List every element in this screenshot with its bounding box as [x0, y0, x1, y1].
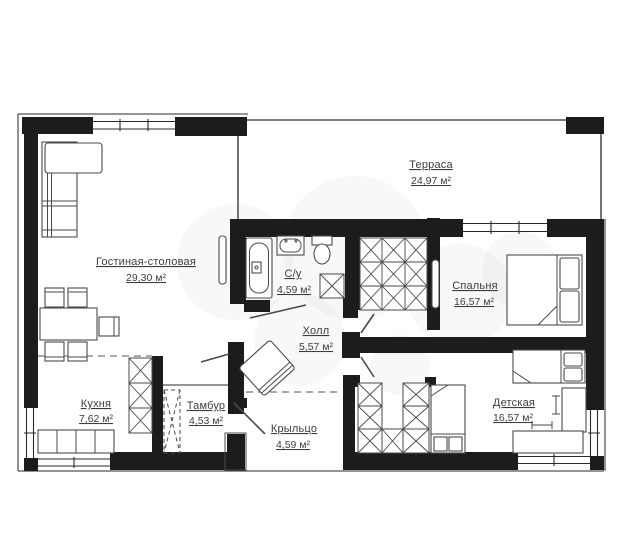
- washing-machine: [320, 274, 344, 298]
- room-label-living-name: Гостиная-столовая: [96, 256, 196, 268]
- vestibule-sliding-wardrobe: [164, 390, 180, 453]
- dining-table: [40, 288, 119, 361]
- room-label-terrace-name: Терраса: [409, 159, 453, 171]
- room-label-children-name: Детская: [493, 397, 535, 409]
- room-label-hall-name: Холл: [303, 325, 330, 337]
- room-label-kitchen-name: Кухня: [81, 398, 111, 410]
- kitchen-cabinet-column: [129, 358, 152, 433]
- bathtub: [246, 238, 272, 298]
- room-label-porch-area: 4,59 м²: [276, 439, 311, 451]
- sofa: [42, 142, 102, 237]
- room-label-living-area: 29,30 м²: [126, 272, 166, 284]
- children-bed-left: [431, 385, 465, 453]
- children-dresser: [513, 431, 583, 453]
- floor-plan: Гостиная-столовая 29,30 м² Терраса 24,97…: [0, 0, 630, 540]
- floor-plan-page: Гостиная-столовая 29,30 м² Терраса 24,97…: [0, 0, 630, 540]
- bedroom-bed: [507, 255, 582, 325]
- toilet: [312, 236, 332, 264]
- room-label-kitchen-area: 7,62 м²: [79, 413, 114, 425]
- room-label-bedroom-name: Спальня: [452, 280, 498, 292]
- room-label-bathroom-area: 4,59 м²: [277, 284, 312, 296]
- hall-closet: [360, 238, 427, 310]
- room-label-vestibule-area: 4,53 м²: [189, 415, 224, 427]
- kitchen-counter: [38, 430, 114, 453]
- room-label-hall-area: 5,57 м²: [299, 341, 334, 353]
- vestibule-door-leaf: [201, 354, 229, 362]
- entry-door-leaf: [234, 403, 265, 434]
- room-label-bedroom-area: 16,57 м²: [454, 296, 494, 308]
- room-label-vestibule-name: Тамбур: [187, 400, 226, 412]
- room-label-bathroom-name: С/у: [284, 268, 301, 280]
- sliding-panel-living: [219, 236, 226, 284]
- children-desk: [532, 388, 586, 432]
- sliding-panel-bedroom: [432, 260, 439, 308]
- room-label-porch-name: Крыльцо: [271, 423, 317, 435]
- room-label-terrace-area: 24,97 м²: [411, 175, 451, 187]
- room-label-children-area: 16,57 м²: [493, 412, 533, 424]
- sink: [277, 236, 304, 255]
- children-bed-top: [513, 350, 585, 383]
